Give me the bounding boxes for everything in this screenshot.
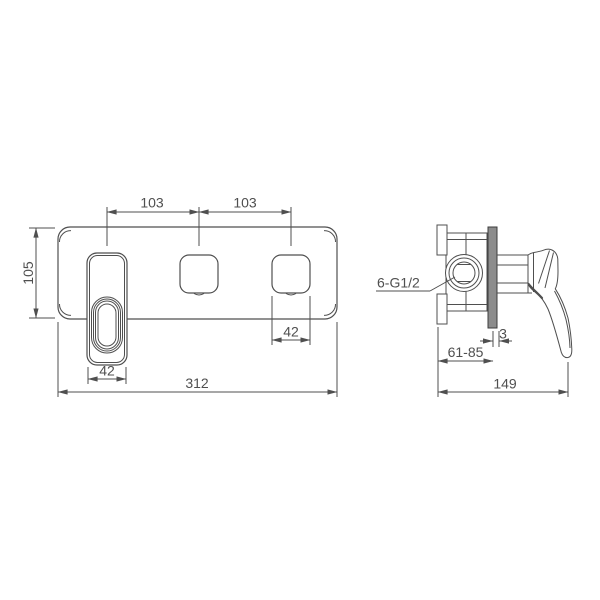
dim-149-label: 149 [493, 376, 517, 392]
dim-depth-149: 149 [438, 362, 568, 397]
dim-depth-61-85: 61-85 [438, 327, 493, 397]
side-view: 6-G1/2 3 61-85 149 [376, 225, 572, 397]
handle-lever-side [528, 249, 572, 357]
technical-drawing-page: 103 103 105 42 42 312 [0, 0, 600, 600]
thread-callout: 6-G1/2 [376, 275, 455, 292]
front-view: 103 103 105 42 42 312 [20, 195, 337, 398]
pipe-stub-top [437, 225, 447, 255]
outlet-cutout-middle [180, 255, 218, 293]
dim-3-label: 3 [499, 326, 507, 342]
thread-label: 6-G1/2 [377, 275, 420, 291]
dim-61-85-label: 61-85 [448, 344, 484, 360]
dim-height-105: 105 [20, 228, 55, 318]
dim-offset-3: 3 [480, 326, 512, 348]
dim-escutcheon-42: 42 [88, 363, 126, 385]
thread-port-circles [446, 255, 483, 292]
faucet-dimension-drawing: 103 103 105 42 42 312 [0, 0, 600, 600]
dim-105-label: 105 [20, 261, 36, 285]
wall-plate-side [488, 227, 497, 328]
dim-103-right-label: 103 [233, 195, 257, 211]
dim-103-left-label: 103 [140, 195, 164, 211]
dim-42-outlet-label: 42 [283, 324, 299, 340]
outlet-cutout-right [272, 255, 310, 293]
pipe-stub-bottom [437, 294, 447, 324]
handle-knob-rings [92, 297, 123, 353]
dim-42-escutcheon-label: 42 [99, 363, 115, 379]
dim-312-label: 312 [185, 375, 209, 391]
